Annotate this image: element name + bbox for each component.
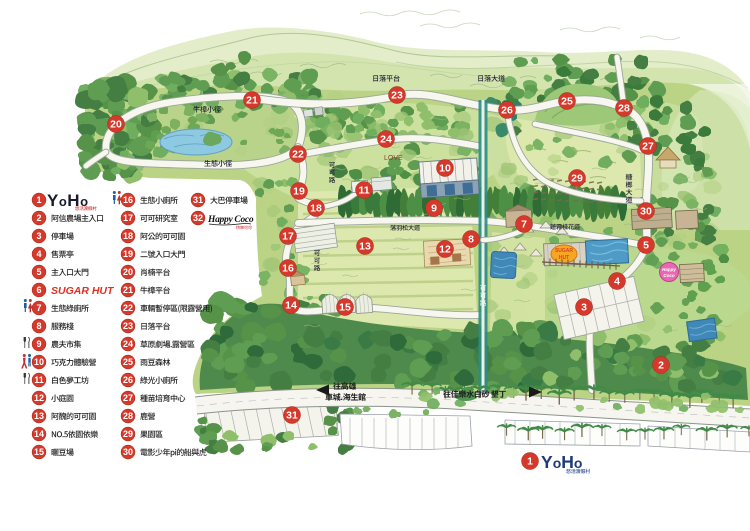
svg-text:7: 7: [521, 219, 527, 231]
svg-text:9: 9: [36, 339, 41, 349]
svg-text:21: 21: [123, 285, 133, 295]
svg-text:17: 17: [282, 231, 294, 243]
svg-text:24: 24: [380, 134, 392, 146]
svg-text:28: 28: [123, 411, 133, 421]
svg-text:31: 31: [193, 195, 203, 205]
svg-text:18: 18: [123, 231, 133, 241]
svg-text:22: 22: [123, 303, 133, 313]
svg-text:3: 3: [36, 231, 41, 241]
svg-text:5: 5: [643, 240, 649, 252]
svg-text:29: 29: [571, 173, 583, 185]
svg-text:12: 12: [439, 244, 451, 256]
svg-text:10: 10: [439, 163, 451, 175]
svg-text:LOVE: LOVE: [384, 155, 403, 162]
svg-text:29: 29: [123, 429, 133, 439]
svg-text:13: 13: [34, 411, 44, 421]
svg-text:15: 15: [339, 302, 351, 314]
svg-text:19: 19: [123, 249, 133, 259]
svg-text:21: 21: [246, 95, 258, 107]
svg-text:25: 25: [561, 96, 573, 108]
svg-text:28: 28: [618, 103, 630, 115]
svg-text:22: 22: [292, 149, 304, 161]
svg-text:20: 20: [110, 119, 122, 131]
svg-text:1: 1: [36, 195, 41, 205]
svg-text:17: 17: [123, 213, 133, 223]
svg-text:19: 19: [293, 186, 305, 198]
svg-text:27: 27: [123, 393, 133, 403]
svg-text:11: 11: [34, 375, 44, 385]
svg-text:26: 26: [123, 375, 133, 385]
svg-text:2: 2: [36, 213, 41, 223]
svg-text:27: 27: [642, 141, 654, 153]
svg-text:12: 12: [34, 393, 44, 403]
svg-text:2: 2: [658, 360, 664, 372]
svg-text:23: 23: [391, 90, 403, 102]
svg-text:6: 6: [36, 285, 41, 295]
svg-text:1: 1: [527, 456, 533, 468]
svg-text:4: 4: [36, 249, 41, 259]
svg-text:16: 16: [123, 195, 133, 205]
svg-text:30: 30: [123, 447, 133, 457]
svg-text:3: 3: [581, 302, 587, 314]
svg-text:SUGAR HUT: SUGAR HUT: [51, 285, 115, 297]
svg-text:15: 15: [34, 447, 44, 457]
svg-text:14: 14: [285, 300, 297, 312]
svg-text:13: 13: [359, 241, 371, 253]
svg-text:31: 31: [286, 410, 298, 422]
svg-text:16: 16: [282, 263, 294, 275]
svg-text:7: 7: [36, 303, 41, 313]
svg-text:Happy: Happy: [662, 267, 676, 272]
svg-text:32: 32: [193, 213, 203, 223]
svg-text:24: 24: [123, 339, 133, 349]
svg-text:10: 10: [34, 357, 44, 367]
svg-text:25: 25: [123, 357, 133, 367]
svg-text:11: 11: [358, 185, 369, 197]
svg-text:8: 8: [36, 321, 41, 331]
svg-text:18: 18: [310, 203, 322, 215]
svg-text:23: 23: [123, 321, 133, 331]
svg-text:26: 26: [501, 105, 513, 117]
svg-text:9: 9: [431, 203, 437, 215]
svg-text:30: 30: [640, 206, 652, 218]
svg-text:5: 5: [36, 267, 41, 277]
svg-text:8: 8: [468, 234, 474, 246]
svg-text:SUGAR: SUGAR: [555, 248, 573, 254]
svg-text:20: 20: [123, 267, 133, 277]
svg-text:Coco: Coco: [663, 273, 675, 278]
svg-text:4: 4: [614, 276, 620, 288]
svg-text:14: 14: [34, 429, 44, 439]
